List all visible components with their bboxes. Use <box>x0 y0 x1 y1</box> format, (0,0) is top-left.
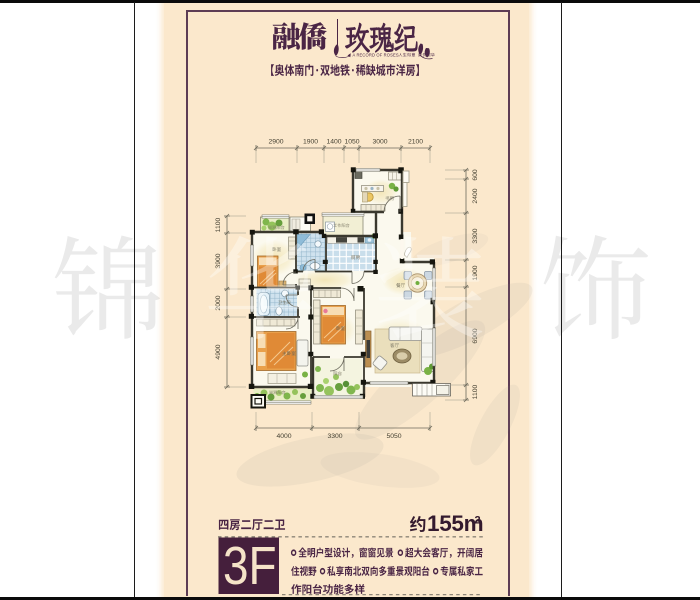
svg-text:2: 2 <box>475 515 481 527</box>
svg-text:3F: 3F <box>223 536 277 596</box>
